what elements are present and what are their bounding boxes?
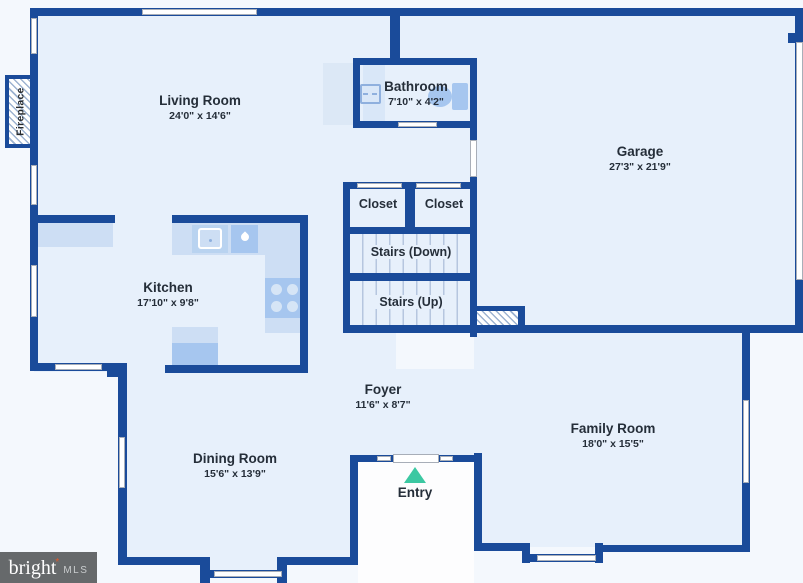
room-name: Stairs (Up) [375, 295, 446, 309]
room-label-garage: Garage 27'3" x 21'9" [609, 144, 671, 173]
room-label-closet-1: Closet [359, 197, 397, 211]
wall-garage-left [470, 58, 477, 337]
room-name: Family Room [571, 421, 656, 437]
fireplace-label: Fireplace [16, 87, 27, 135]
room-dims: 18'0" x 15'5" [571, 438, 656, 450]
room-dims: 27'3" x 21'9" [609, 161, 671, 173]
room-dims: 17'10" x 9'8" [137, 297, 199, 309]
closet-door-opening [357, 183, 402, 188]
wall-dining-bottom-right [280, 557, 358, 565]
wall-dining-bottom [118, 557, 210, 565]
wall-family-bottom [595, 545, 750, 552]
window [119, 437, 125, 488]
wall-stairs-divider [343, 273, 477, 281]
wall-kitchen-top-left [30, 215, 115, 223]
window [55, 364, 102, 370]
room-dims: 15'6" x 13'9" [193, 468, 277, 480]
wall-stairs-bottom [343, 325, 477, 333]
garage-side-door-opening [470, 140, 477, 177]
wall-garage-bottom [470, 325, 803, 333]
kitchen-cabinet [172, 343, 218, 365]
shower-dash [372, 93, 377, 95]
room-dims: 11'6" x 8'7" [355, 399, 410, 411]
room-name: Kitchen [137, 280, 199, 296]
front-door-opening [393, 454, 439, 463]
floor-plan: Fireplace [0, 0, 803, 583]
room-label-entry: Entry [398, 485, 433, 501]
room-name: Stairs (Down) [367, 245, 456, 259]
room-dims: 24'0" x 14'6" [159, 110, 241, 122]
wall-kitchen-right [300, 215, 308, 373]
room-name: Garage [609, 144, 671, 160]
entry-sidelight-window [440, 456, 453, 461]
wall-entry-right [474, 453, 482, 550]
room-name: Entry [398, 485, 433, 501]
logo-spark-icon: * [55, 558, 59, 568]
stove-burner-icon [271, 301, 282, 312]
room-name: Living Room [159, 93, 241, 109]
window [31, 165, 37, 205]
room-label-bathroom: Bathroom 7'10" x 4'2" [384, 79, 448, 108]
logo-mls-text: MLS [63, 566, 88, 576]
wall-bay-left [200, 557, 210, 583]
room-name: Closet [359, 197, 397, 211]
entry-sidelight-window [377, 456, 391, 461]
shower-dash [363, 93, 368, 95]
room-dims: 7'10" x 4'2" [384, 96, 448, 108]
bathroom-door-opening [398, 122, 437, 127]
wall-kitchen-bottom [165, 365, 308, 373]
room-label-family-room: Family Room 18'0" x 15'5" [571, 421, 656, 450]
room-name: Closet [425, 197, 463, 211]
wall-bathroom-left [353, 58, 360, 128]
wall-closet-bottom [343, 227, 477, 234]
toilet-tank-icon [452, 83, 468, 110]
entry-direction-arrow [404, 467, 426, 483]
closet-door-opening [416, 183, 461, 188]
room-label-stairs-down: Stairs (Down) [367, 245, 456, 259]
stove-burner-icon [287, 284, 298, 295]
stove-burner-icon [287, 301, 298, 312]
room-label-foyer: Foyer 11'6" x 8'7" [355, 382, 410, 411]
room-name: Foyer [355, 382, 410, 398]
wall-stairs-left [343, 182, 350, 333]
wall-living-right [390, 8, 400, 58]
kitchen-counter-bottom [172, 327, 218, 343]
stove-burner-icon [271, 284, 282, 295]
room-label-living-room: Living Room 24'0" x 14'6" [159, 93, 241, 122]
wall-kitchen-top-right [172, 215, 308, 223]
room-label-dining-room: Dining Room 15'6" x 13'9" [193, 451, 277, 480]
family-right-window [743, 400, 749, 483]
room-label-stairs-up: Stairs (Up) [375, 295, 446, 309]
vanity-cabinet [323, 63, 353, 125]
stove [265, 278, 302, 318]
wall-entry-left [350, 455, 358, 565]
sink-faucet-dot [209, 239, 212, 242]
bright-mls-logo: bright * MLS [0, 552, 97, 583]
counter [38, 223, 113, 247]
room-label-closet-2: Closet [425, 197, 463, 211]
window [142, 9, 257, 15]
bay-window [214, 571, 282, 577]
wall-bathroom-top [353, 58, 477, 65]
window [31, 265, 37, 317]
window [31, 18, 37, 54]
room-label-kitchen: Kitchen 17'10" x 9'8" [137, 280, 199, 309]
room-name: Dining Room [193, 451, 277, 467]
room-name: Bathroom [384, 79, 448, 95]
garage-door-opening [796, 42, 803, 280]
family-bay-window [537, 555, 596, 561]
logo-brand-text: bright [9, 558, 57, 578]
